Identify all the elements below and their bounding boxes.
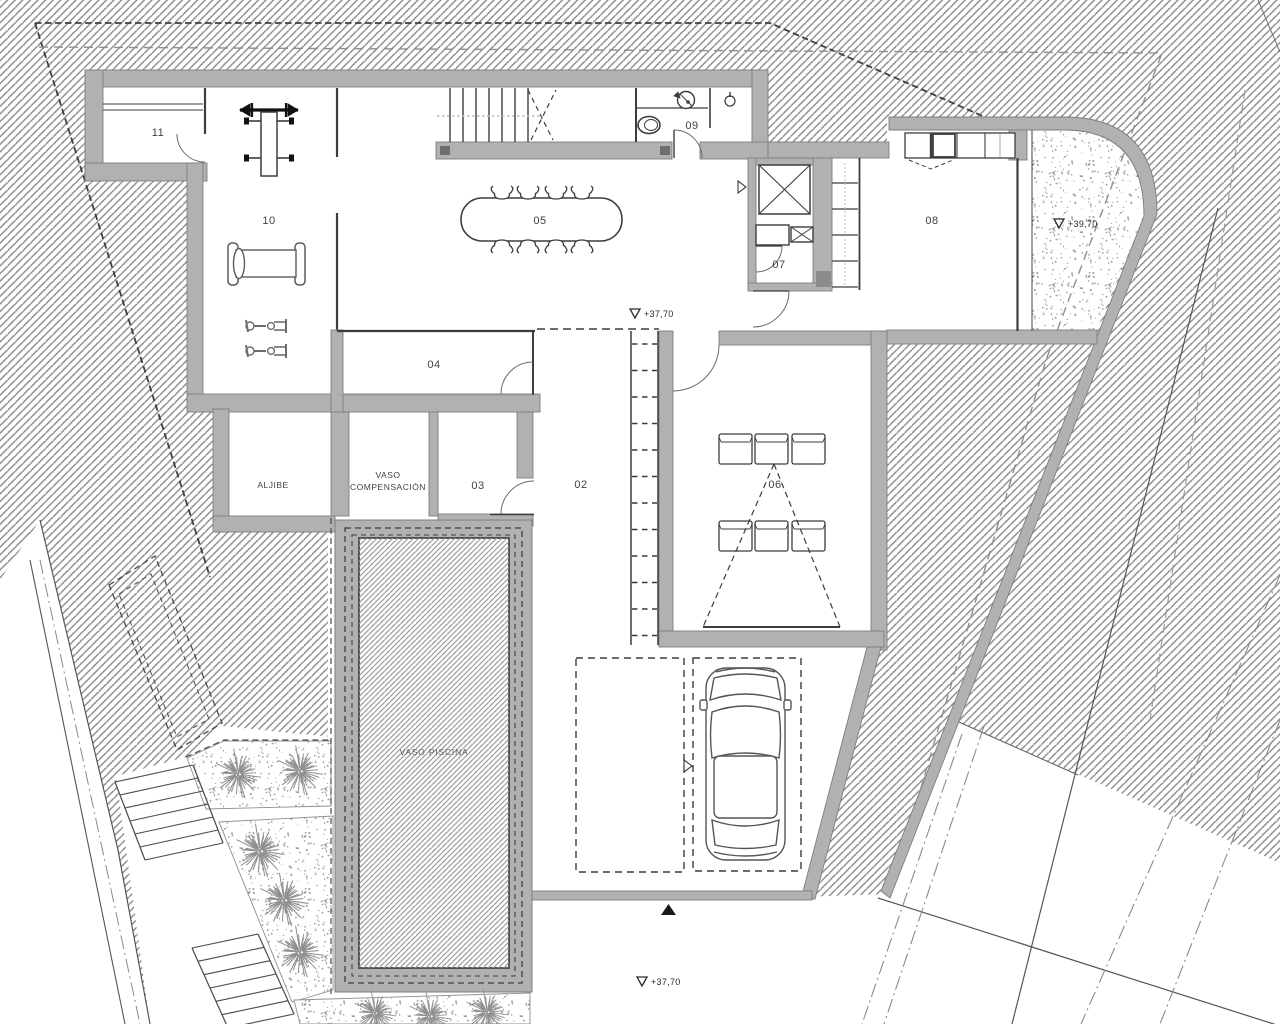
svg-text:+37,70: +37,70	[651, 977, 681, 987]
svg-text:02: 02	[574, 479, 587, 491]
svg-text:ALJIBE: ALJIBE	[257, 480, 288, 490]
svg-text:+37,70: +37,70	[644, 309, 674, 319]
svg-text:10: 10	[262, 215, 275, 227]
svg-text:05: 05	[533, 215, 546, 227]
svg-text:07: 07	[772, 259, 785, 271]
svg-text:08: 08	[925, 215, 938, 227]
svg-text:VASO PISCINA: VASO PISCINA	[400, 747, 469, 757]
svg-text:04: 04	[427, 359, 440, 371]
svg-text:+39,70: +39,70	[1068, 219, 1098, 229]
svg-text:VASO: VASO	[376, 470, 401, 480]
svg-text:03: 03	[471, 480, 484, 492]
svg-text:COMPENSACIÓN: COMPENSACIÓN	[350, 482, 426, 492]
svg-text:09: 09	[685, 120, 698, 132]
svg-text:06: 06	[768, 479, 781, 491]
svg-text:11: 11	[152, 127, 164, 139]
